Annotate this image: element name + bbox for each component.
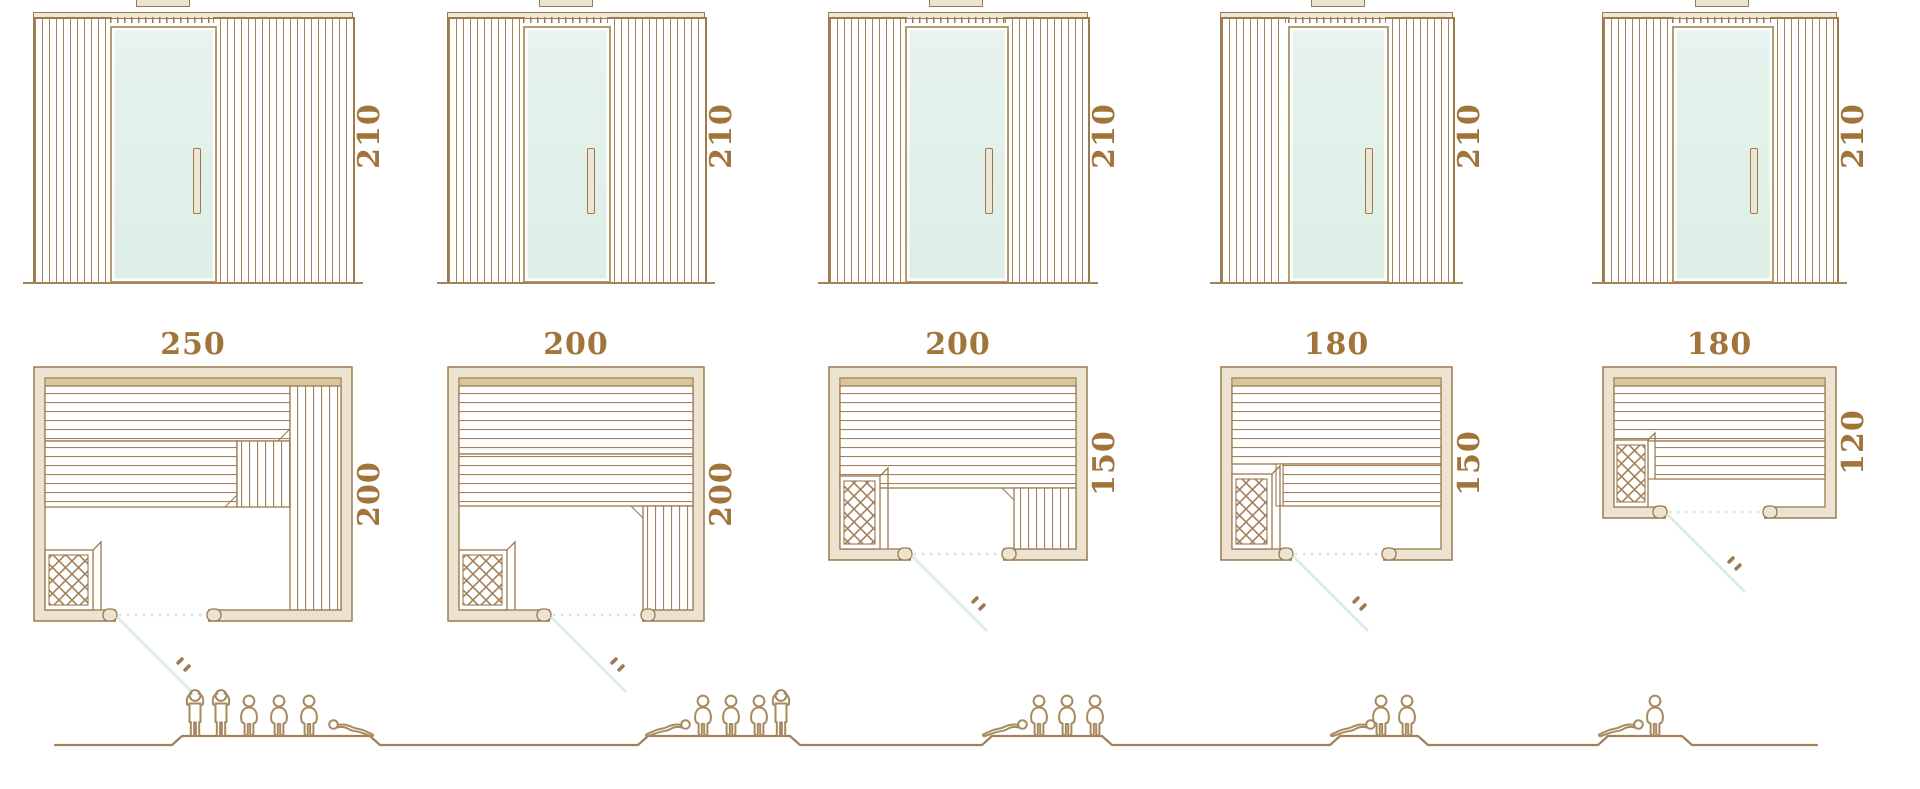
swing-door-handle-mark bbox=[971, 596, 980, 605]
backrest-band bbox=[1614, 378, 1825, 386]
sauna-unit-4: 210 180 150 bbox=[1220, 0, 1453, 789]
door-swing-line bbox=[1667, 514, 1745, 592]
elevation-view bbox=[447, 0, 705, 284]
plan-depth-label: 200 bbox=[354, 459, 386, 529]
plan-width-label: 200 bbox=[828, 328, 1088, 362]
person-standing-icon bbox=[213, 690, 229, 736]
elevation-height-label: 210 bbox=[1454, 101, 1486, 171]
door-jamb-left bbox=[1279, 548, 1293, 560]
wood-slat-panel-right bbox=[213, 17, 355, 283]
floor-plan-view bbox=[1220, 366, 1453, 647]
floor-plan-view bbox=[1602, 366, 1837, 605]
glass-door bbox=[1288, 26, 1389, 283]
wood-slat-panel-right bbox=[1385, 17, 1455, 283]
elevation-view bbox=[1602, 0, 1837, 284]
bench-upper bbox=[459, 386, 693, 454]
sauna-size-diagram: 210 250 200 bbox=[0, 0, 1920, 789]
bench-step bbox=[237, 441, 290, 507]
roof-vent bbox=[539, 0, 593, 7]
plan-width-label: 180 bbox=[1220, 328, 1453, 362]
door-opening bbox=[911, 547, 1003, 563]
swing-door-handle-mark bbox=[183, 664, 192, 673]
person-lying-icon bbox=[646, 720, 690, 736]
person-seated-icon bbox=[723, 696, 739, 736]
person-seated-icon bbox=[751, 696, 767, 736]
wood-slat-panel-left bbox=[33, 17, 112, 283]
bench-lower bbox=[1283, 464, 1441, 506]
glass-door bbox=[1672, 26, 1774, 283]
bench-lower bbox=[1655, 441, 1825, 479]
person-seated-icon bbox=[241, 696, 257, 736]
capacity-group-3 bbox=[983, 696, 1103, 737]
heater bbox=[45, 542, 101, 610]
wood-slat-panel-left bbox=[447, 17, 525, 283]
door-handle bbox=[1365, 148, 1373, 214]
elevation-height-label: 210 bbox=[706, 101, 738, 171]
door-jamb-left bbox=[103, 609, 117, 621]
sauna-unit-1: 210 250 200 bbox=[33, 0, 353, 789]
sauna-unit-3: 210 200 150 bbox=[828, 0, 1088, 789]
person-seated-icon bbox=[301, 696, 317, 736]
person-lying-icon bbox=[1331, 720, 1375, 736]
ground-line bbox=[437, 282, 715, 284]
bench-post bbox=[1648, 441, 1655, 479]
ground-line bbox=[23, 282, 363, 284]
bench-lower bbox=[45, 441, 237, 507]
plan-depth-label: 150 bbox=[1454, 428, 1486, 498]
person-seated-icon bbox=[1399, 696, 1415, 736]
person-standing-icon bbox=[773, 690, 789, 736]
elevation-view bbox=[828, 0, 1088, 284]
swing-door-handle-mark bbox=[1359, 603, 1368, 612]
plan-depth-label: 120 bbox=[1838, 407, 1870, 477]
roof-vent bbox=[929, 0, 983, 7]
swing-door-handle-mark bbox=[978, 603, 987, 612]
swing-door-handle-mark bbox=[1352, 596, 1361, 605]
elevation-height-label: 210 bbox=[354, 101, 386, 171]
floor-plan-view bbox=[33, 366, 353, 708]
door-jamb-right bbox=[1382, 548, 1396, 560]
door-jamb-left bbox=[898, 548, 912, 560]
sauna-unit-5: 210 180 120 bbox=[1602, 0, 1837, 789]
elevation-view bbox=[33, 0, 353, 284]
person-seated-icon bbox=[271, 696, 287, 736]
capacity-strip bbox=[0, 680, 1920, 789]
swing-door-handle-mark bbox=[617, 664, 626, 673]
backrest-band bbox=[840, 378, 1076, 386]
bench-upper bbox=[1614, 386, 1825, 441]
capacity-group-5 bbox=[1599, 696, 1663, 737]
person-seated-icon bbox=[1647, 696, 1663, 736]
swing-door-handle-mark bbox=[610, 657, 619, 666]
bench-right bbox=[1014, 488, 1076, 549]
person-seated-icon bbox=[1087, 696, 1103, 736]
ground-profile-line bbox=[55, 736, 1817, 745]
person-seated-icon bbox=[1373, 696, 1389, 736]
door-jamb-left bbox=[1653, 506, 1667, 518]
plan-width-label: 250 bbox=[33, 328, 353, 362]
bench-right bbox=[290, 386, 341, 610]
person-standing-icon bbox=[187, 690, 203, 736]
plan-width-label: 180 bbox=[1602, 328, 1837, 362]
plan-width-label: 200 bbox=[447, 328, 705, 362]
bench-upper bbox=[1232, 386, 1441, 464]
person-lying-icon bbox=[329, 720, 373, 736]
floor-plan-view bbox=[447, 366, 705, 708]
person-lying-icon bbox=[1599, 720, 1643, 736]
bench-upper bbox=[45, 386, 290, 441]
ground-line bbox=[1592, 282, 1847, 284]
person-seated-icon bbox=[695, 696, 711, 736]
floor-plan-view bbox=[828, 366, 1088, 647]
door-swing-line bbox=[1293, 556, 1368, 631]
wood-slat-panel-left bbox=[1602, 17, 1674, 283]
person-seated-icon bbox=[1031, 696, 1047, 736]
person-seated-icon bbox=[1059, 696, 1075, 736]
elevation-height-label: 210 bbox=[1838, 101, 1870, 171]
wood-slat-panel-right bbox=[1005, 17, 1090, 283]
door-jamb-right bbox=[641, 609, 655, 621]
bench-lower bbox=[459, 454, 693, 506]
wood-slat-panel-left bbox=[828, 17, 907, 283]
wood-slat-panel-left bbox=[1220, 17, 1290, 283]
capacity-group-1 bbox=[187, 690, 373, 736]
capacity-group-2 bbox=[646, 690, 789, 736]
glass-door bbox=[905, 26, 1009, 283]
ground-line bbox=[818, 282, 1098, 284]
backrest-band bbox=[1232, 378, 1441, 386]
ground-line bbox=[1210, 282, 1463, 284]
door-jamb-right bbox=[1763, 506, 1777, 518]
sauna-unit-2: 210 200 200 bbox=[447, 0, 705, 789]
door-handle bbox=[985, 148, 993, 214]
roof-vent bbox=[1695, 0, 1749, 7]
capacity-group-4 bbox=[1331, 696, 1415, 737]
roof-vent bbox=[1311, 0, 1365, 7]
door-handle bbox=[587, 148, 595, 214]
glass-door bbox=[110, 26, 217, 283]
wood-slat-panel-right bbox=[607, 17, 707, 283]
swing-door-handle-mark bbox=[176, 657, 185, 666]
elevation-height-label: 210 bbox=[1089, 101, 1121, 171]
door-opening bbox=[116, 608, 208, 624]
backrest-band bbox=[45, 378, 341, 386]
elevation-view bbox=[1220, 0, 1453, 284]
swing-door-handle-mark bbox=[1734, 563, 1743, 572]
roof-vent bbox=[136, 0, 190, 7]
heater bbox=[459, 542, 515, 610]
door-jamb-right bbox=[1002, 548, 1016, 560]
door-jamb-left bbox=[537, 609, 551, 621]
person-lying-icon bbox=[983, 720, 1027, 736]
glass-door bbox=[523, 26, 611, 283]
door-handle bbox=[193, 148, 201, 214]
bench-right bbox=[643, 506, 693, 610]
swing-door-handle-mark bbox=[1727, 556, 1736, 565]
door-jamb-right bbox=[207, 609, 221, 621]
wood-slat-panel-right bbox=[1770, 17, 1839, 283]
plan-depth-label: 200 bbox=[706, 459, 738, 529]
door-handle bbox=[1750, 148, 1758, 214]
plan-depth-label: 150 bbox=[1089, 428, 1121, 498]
backrest-band bbox=[459, 378, 693, 386]
door-opening bbox=[550, 608, 642, 624]
door-swing-line bbox=[912, 556, 987, 631]
bench-upper bbox=[840, 386, 1076, 488]
